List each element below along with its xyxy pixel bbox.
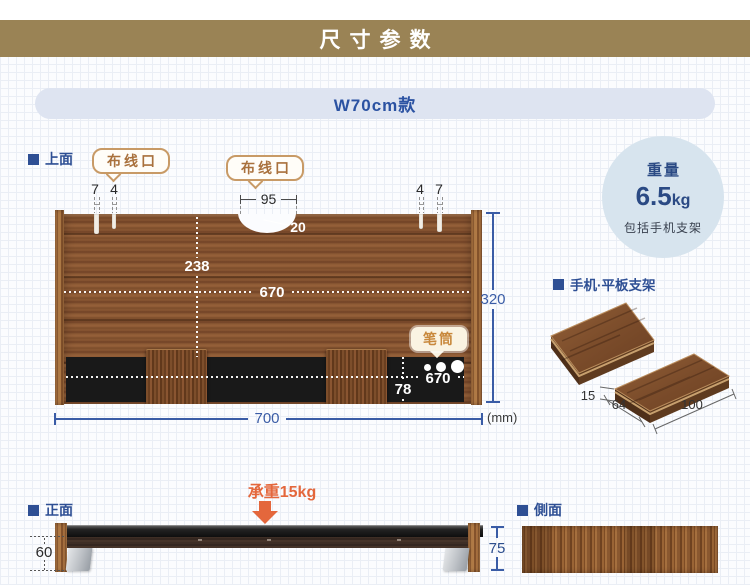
leader-line (423, 197, 424, 213)
dim-slot-left-a: 7 (88, 182, 102, 197)
leader-line (94, 197, 95, 213)
leader-line (419, 204, 424, 205)
dim-tick (296, 195, 297, 204)
front-wood-cap-right (468, 523, 480, 572)
dimension-infographic: 尺寸参数 W70cm款 上面 布线口 布线口 (0, 0, 750, 585)
leader-line (296, 206, 297, 216)
leader-line (94, 204, 100, 205)
square-bullet-icon (28, 505, 39, 516)
front-wood-cap-left (55, 523, 67, 572)
page-title-banner: 尺寸参数 (0, 20, 750, 57)
screw-dot (267, 539, 271, 541)
weight-badge: 重量 6.5kg 包括手机支架 (602, 136, 724, 258)
callout-cable-port-left: 布线口 (92, 148, 170, 174)
callout-text: 布线口 (238, 158, 292, 178)
stand-diagram: 15 64 100 (540, 290, 750, 445)
weight-value: 6.5kg (636, 182, 691, 215)
dim-line (30, 536, 64, 537)
dim-line (30, 570, 64, 571)
dim-line (281, 199, 297, 200)
model-label: W70cm款 (334, 91, 417, 116)
dim-front-clearance: 60 (33, 545, 55, 560)
section-label-text: 上面 (45, 149, 73, 169)
leader-line (240, 206, 241, 216)
dim-line (64, 291, 252, 293)
screw-dot (397, 539, 401, 541)
leader-line (112, 197, 113, 213)
dim-line (496, 557, 498, 569)
board-top-view: 238 670 670 78 20 (64, 214, 471, 404)
down-arrow-icon (259, 501, 271, 511)
leader-line (419, 197, 420, 213)
dim-line (402, 357, 404, 381)
dim-notch-width: 95 (256, 192, 281, 207)
section-label-front-view: 正面 (28, 500, 73, 520)
leader-line (442, 197, 443, 213)
front-shelf-top (55, 525, 483, 537)
cable-slot (437, 214, 442, 232)
model-pill: W70cm款 (35, 88, 715, 119)
stand-block (615, 354, 729, 423)
stand-block (551, 303, 654, 385)
square-bullet-icon (553, 279, 564, 290)
dim-line (240, 199, 256, 200)
board-side-edge-left (55, 210, 64, 405)
weight-title: 重量 (645, 159, 681, 180)
dim-front-height: 75 (486, 540, 508, 557)
dim-line (44, 560, 45, 570)
dim-stand-depth: 64 (612, 397, 626, 412)
dim-stand-thickness: 15 (581, 388, 595, 403)
side-view-panel (522, 526, 718, 573)
dim-tray-width: 670 (418, 370, 458, 387)
dim-cap (491, 569, 504, 571)
dim-line (496, 528, 498, 538)
dim-slot-right-a: 4 (413, 182, 427, 197)
callout-cable-port-right: 布线口 (226, 155, 304, 181)
screw-dot (198, 539, 202, 541)
dim-board-width: 700 (248, 410, 286, 427)
load-capacity-label: 承重15kg (222, 478, 342, 502)
dim-slot-left-b: 4 (107, 182, 121, 197)
dim-tick (240, 195, 241, 204)
dim-cap (486, 401, 500, 403)
leader-line (437, 197, 438, 213)
section-label-text: 正面 (45, 500, 73, 520)
down-arrow-icon (252, 511, 278, 524)
dim-slot-right-b: 7 (432, 182, 446, 197)
dim-line (56, 418, 248, 420)
weight-unit: kg (672, 192, 691, 209)
section-label-top-view: 上面 (28, 149, 73, 169)
unit-note: (mm) (487, 410, 529, 425)
cable-slot (94, 214, 99, 234)
dim-cap (481, 413, 483, 425)
dim-notch-depth: 20 (286, 219, 310, 236)
dim-board-depth-mid: 238 (180, 258, 214, 275)
dim-line (402, 399, 404, 402)
dim-line (196, 276, 198, 357)
dim-line (196, 217, 198, 258)
section-label-text: 側面 (534, 500, 562, 520)
weight-number: 6.5 (636, 181, 672, 211)
dim-line (286, 418, 481, 420)
dim-line (458, 376, 464, 378)
page-title: 尺寸参数 (311, 24, 440, 54)
leader-line (112, 204, 117, 205)
cable-slot (419, 214, 423, 229)
square-bullet-icon (28, 154, 39, 165)
dim-stand-width: 100 (681, 397, 703, 412)
leader-line (99, 197, 100, 213)
callout-text: 布线口 (104, 151, 158, 171)
metal-leg (66, 548, 93, 571)
dim-line (492, 214, 494, 290)
cable-slot (112, 214, 116, 229)
leader-line (437, 204, 443, 205)
metal-leg (443, 548, 470, 571)
dim-tray-depth: 78 (388, 381, 418, 398)
dim-line (492, 309, 494, 402)
dim-line (66, 376, 418, 378)
weight-note: 包括手机支架 (624, 219, 702, 236)
section-label-side-view: 側面 (517, 500, 562, 520)
callout-pen-holder: 笔筒 (411, 327, 467, 351)
square-bullet-icon (517, 505, 528, 516)
callout-text: 笔筒 (423, 329, 455, 349)
leader-line (116, 197, 117, 213)
dim-board-inner-width: 670 (252, 284, 292, 301)
dim-line (292, 291, 471, 293)
dim-board-depth: 320 (478, 291, 508, 308)
